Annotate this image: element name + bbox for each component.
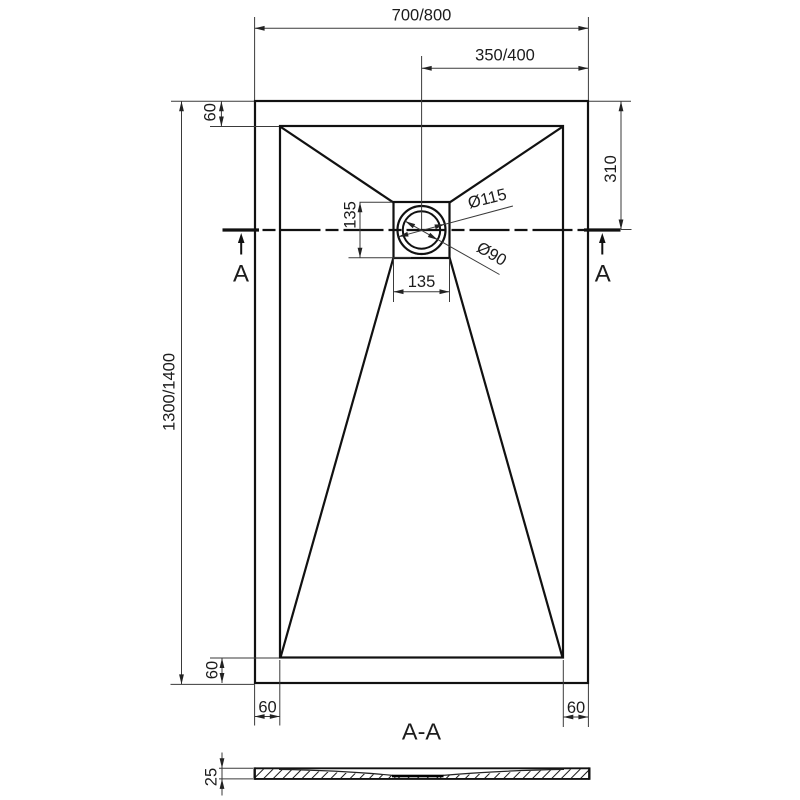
svg-text:60: 60: [258, 699, 276, 717]
svg-text:700/800: 700/800: [392, 7, 452, 25]
svg-text:25: 25: [203, 768, 221, 786]
svg-text:A-A: A-A: [402, 719, 442, 745]
svg-text:A: A: [595, 261, 611, 288]
svg-text:60: 60: [202, 103, 220, 121]
svg-text:350/400: 350/400: [475, 47, 535, 65]
svg-text:310: 310: [602, 155, 620, 183]
svg-text:A: A: [233, 261, 249, 288]
svg-text:1300/1400: 1300/1400: [161, 353, 179, 431]
svg-text:135: 135: [342, 201, 360, 229]
svg-text:60: 60: [204, 661, 222, 679]
svg-text:60: 60: [567, 699, 585, 717]
svg-text:135: 135: [408, 273, 436, 291]
